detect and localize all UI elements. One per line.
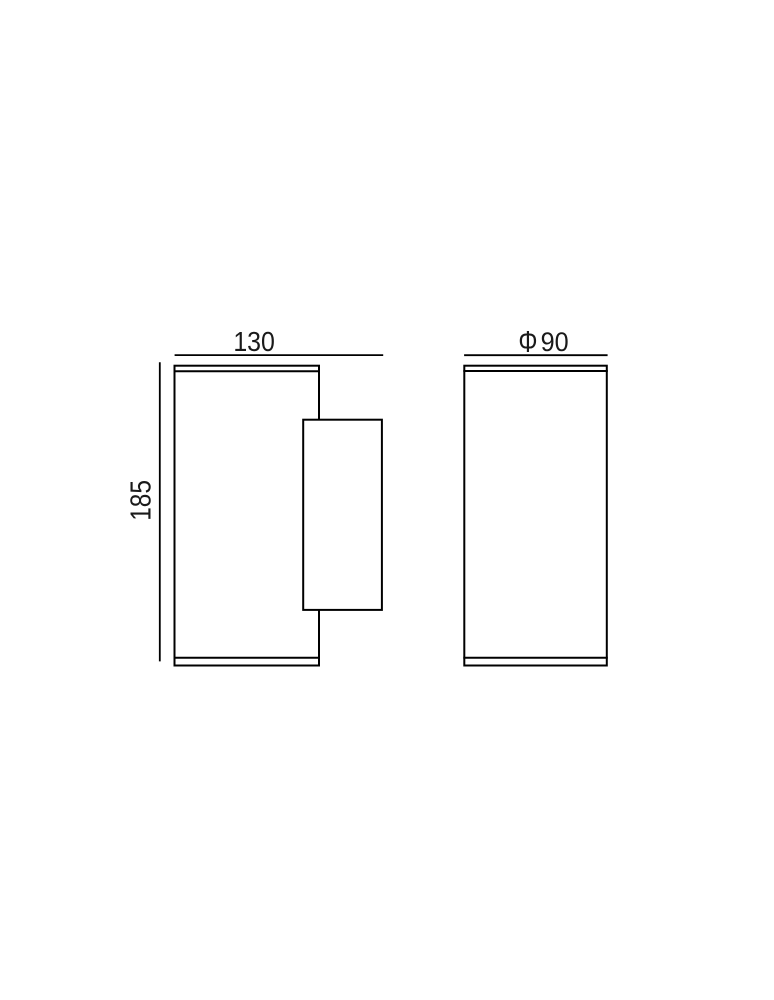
svg-text:90: 90 <box>541 326 569 357</box>
svg-text:185: 185 <box>125 480 157 521</box>
svg-text:Φ: Φ <box>518 324 537 358</box>
svg-text:130: 130 <box>233 326 275 358</box>
